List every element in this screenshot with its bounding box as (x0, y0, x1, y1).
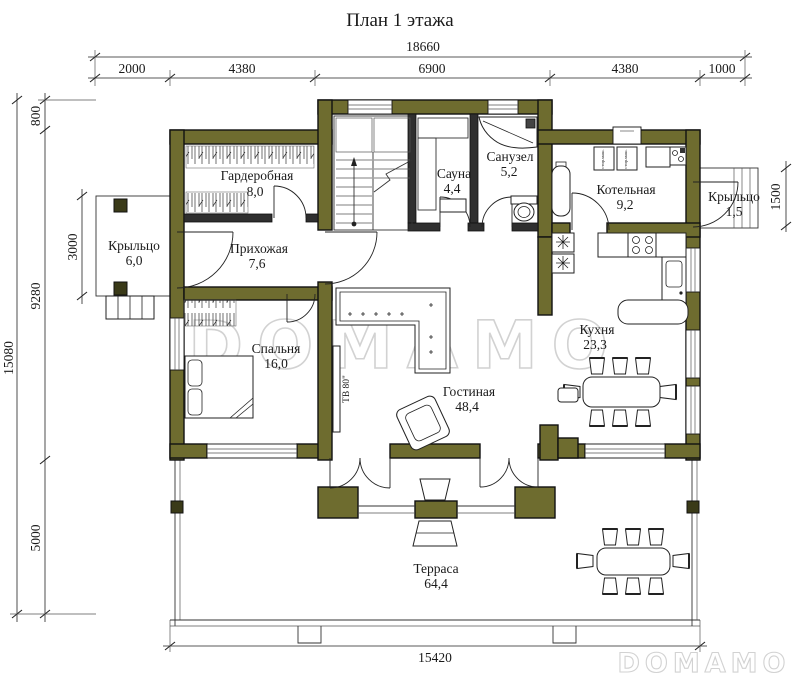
dim-porch-left: 3000 (65, 233, 80, 260)
armchair (395, 394, 452, 452)
terrace-door-left (330, 458, 390, 488)
porch-column (114, 282, 127, 295)
wardrobe-door (274, 186, 306, 218)
terrace-door-right (480, 458, 538, 487)
bathroom-door (482, 197, 512, 227)
dimension-left-segments: 800 9280 5000 (10, 93, 96, 622)
room-label-living: Гостиная (443, 384, 495, 399)
page-title: План 1 этажа (346, 10, 454, 31)
stairs (334, 116, 412, 230)
dim-seg-3: 6900 (419, 61, 446, 76)
porch-column (114, 199, 127, 212)
room-label-wardrobe: Гардеробная (221, 168, 294, 183)
shower-head (526, 119, 535, 128)
dim-left-1: 800 (28, 106, 43, 127)
dim-left-3: 5000 (28, 524, 43, 551)
room-label-bedroom: Спальня (252, 341, 301, 356)
bed (185, 356, 253, 418)
watermark-corner-text: DOMAMO (618, 648, 791, 679)
room-label-porch-left: Крыльцо (108, 238, 160, 253)
room-label-bathroom: Санузел (486, 149, 533, 164)
room-area-kitchen: 23,3 (583, 337, 607, 352)
dim-bottom-width: 15420 (418, 650, 452, 665)
dim-seg-5: 1000 (709, 61, 736, 76)
dim-total-height: 15080 (1, 341, 16, 375)
dryer-label: стир.маш. (623, 149, 628, 168)
terrace-step (298, 626, 321, 643)
boiler-table (646, 147, 670, 167)
side-table (558, 388, 578, 402)
stoop-pier (515, 487, 555, 518)
stoop-steps-up (420, 479, 450, 500)
dim-seg-2: 4380 (229, 61, 256, 76)
stair-break-line (374, 160, 412, 192)
room-area-living: 48,4 (455, 399, 479, 414)
room-label-hallway: Прихожая (230, 241, 288, 256)
tv-label: ТВ 80" (342, 375, 352, 403)
stove (628, 233, 656, 257)
stoop-steps-down (413, 521, 457, 546)
dim-left-2: 9280 (28, 282, 43, 309)
room-area-sauna: 4,4 (444, 181, 461, 196)
room-area-terrace: 64,4 (424, 576, 448, 591)
room-area-hallway: 7,6 (249, 256, 266, 271)
terrace-step (553, 626, 576, 643)
stoop-pier (415, 501, 457, 518)
kitchen-island (618, 300, 688, 324)
stair-direction-arrow (351, 157, 357, 166)
floor-plan-page: DOMAMO DOMAMO План 1 этажа 18660 2000 43… (0, 0, 800, 683)
entry-door (177, 232, 233, 288)
dimension-left-porch: 3000 (65, 189, 87, 304)
terrace-post (687, 501, 699, 513)
floor-plan-drawing: DOMAMO DOMAMO План 1 этажа 18660 2000 43… (0, 0, 800, 683)
tv (333, 346, 340, 432)
room-area-porch-left: 6,0 (126, 253, 143, 268)
chimney-vent (613, 127, 641, 144)
sauna-bench-side (418, 138, 436, 210)
terrace-table (597, 548, 670, 575)
dimension-left-total: 15080 (1, 93, 22, 622)
watermark-corner: DOMAMO (618, 648, 791, 679)
sauna-bench-top (418, 118, 468, 138)
terrace-dining-set (577, 529, 689, 594)
room-area-bedroom: 16,0 (264, 356, 288, 371)
hanger-rail (186, 146, 314, 168)
terrace-post (171, 501, 183, 513)
room-area-boiler: 9,2 (617, 197, 634, 212)
room-label-porch-right: Крыльцо (708, 189, 760, 204)
dim-seg-1: 2000 (119, 61, 146, 76)
dim-total-width: 18660 (406, 39, 440, 54)
boiler-cylinder (552, 166, 570, 216)
dimension-right-porch: 1500 (768, 161, 791, 232)
room-label-terrace: Терраса (413, 561, 458, 576)
sauna-fixtures (418, 118, 468, 212)
sauna-heater (440, 199, 466, 212)
stoop-pier (318, 487, 358, 518)
boiler-door (572, 193, 609, 230)
hanger-rail (186, 192, 248, 213)
room-area-wardrobe: 8,0 (247, 184, 264, 199)
washer-label: стир.маш. (600, 149, 605, 168)
room-area-porch-right: 1,5 (726, 204, 743, 219)
bedroom-wardrobe (184, 300, 236, 326)
room-label-sauna: Сауна (437, 166, 471, 181)
room-label-boiler: Котельная (596, 182, 655, 197)
terrace (170, 458, 700, 643)
kitchen-table (583, 377, 660, 407)
toilet-bowl (514, 203, 534, 221)
hall-door (325, 232, 377, 284)
dim-porch-right: 1500 (768, 183, 783, 210)
dim-seg-4: 4380 (612, 61, 639, 76)
dimension-top-segments: 2000 4380 6900 4380 1000 (88, 61, 752, 86)
room-label-kitchen: Кухня (580, 322, 615, 337)
room-area-bathroom: 5,2 (501, 164, 518, 179)
